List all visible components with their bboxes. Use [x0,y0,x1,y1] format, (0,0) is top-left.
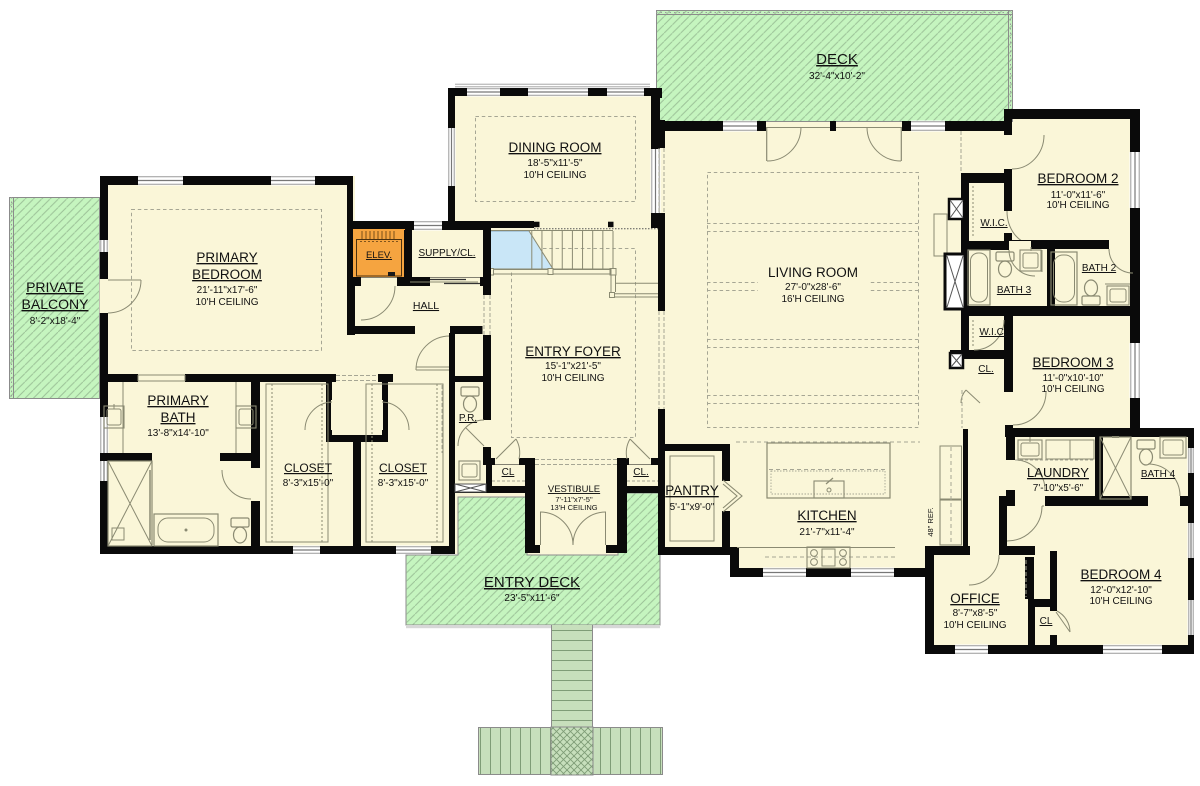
svg-text:10'H CEILING: 10'H CEILING [1089,596,1152,607]
svg-text:BATH: BATH [160,410,195,425]
svg-text:21'-7"x11'-4": 21'-7"x11'-4" [799,527,855,538]
svg-text:CL: CL [1040,616,1053,627]
svg-text:BATH 2: BATH 2 [1082,263,1117,274]
svg-text:27'-0"x28'-6": 27'-0"x28'-6" [785,282,841,293]
svg-text:10'H CEILING: 10'H CEILING [1046,200,1109,211]
svg-text:18'-5"x11'-5": 18'-5"x11'-5" [527,158,583,169]
svg-text:DINING ROOM: DINING ROOM [509,140,602,155]
svg-text:ELEV.: ELEV. [366,250,392,261]
svg-text:10'H CEILING: 10'H CEILING [1041,384,1104,395]
svg-text:CLOSET: CLOSET [284,461,333,475]
svg-text:10'H CEILING: 10'H CEILING [195,297,258,308]
svg-text:5'-1"x9'-0": 5'-1"x9'-0" [670,502,715,513]
svg-text:W.I.C.: W.I.C. [979,327,1006,338]
svg-text:13'-8"x14'-10": 13'-8"x14'-10" [147,428,209,439]
svg-text:LIVING ROOM: LIVING ROOM [768,265,858,280]
svg-text:32'-4"x10'-2": 32'-4"x10'-2" [809,71,865,82]
svg-text:11'-0"x10'-10": 11'-0"x10'-10" [1043,373,1104,384]
svg-text:8'-7"x8'-5": 8'-7"x8'-5" [953,608,998,619]
svg-text:W.I.C.: W.I.C. [980,218,1007,229]
svg-text:BEDROOM 4: BEDROOM 4 [1080,567,1162,582]
svg-text:8'-3"x15'-0": 8'-3"x15'-0" [378,478,429,489]
svg-text:LAUNDRY: LAUNDRY [1027,465,1089,480]
svg-text:CL.: CL. [633,467,649,478]
svg-text:7'-10"x5'-6": 7'-10"x5'-6" [1033,483,1084,494]
svg-text:VESTIBULE: VESTIBULE [548,484,600,495]
svg-text:13'H CEILING: 13'H CEILING [550,503,597,512]
svg-text:15'-1"x21'-5": 15'-1"x21'-5" [545,361,601,372]
svg-text:SUPPLY/CL.: SUPPLY/CL. [418,248,475,259]
svg-text:PRIMARY: PRIMARY [196,250,257,265]
svg-text:PRIVATE: PRIVATE [26,279,84,295]
svg-text:BEDROOM: BEDROOM [192,267,262,282]
svg-text:KITCHEN: KITCHEN [797,508,856,523]
svg-text:BEDROOM 3: BEDROOM 3 [1032,355,1113,370]
svg-text:10'H CEILING: 10'H CEILING [523,170,586,181]
svg-text:BALCONY: BALCONY [22,296,90,312]
svg-text:16'H CEILING: 16'H CEILING [781,294,844,305]
svg-text:P.R.: P.R. [459,413,477,424]
svg-text:HALL: HALL [413,300,439,312]
svg-text:48" REF.: 48" REF. [926,507,935,536]
svg-text:BATH 4: BATH 4 [1141,469,1176,480]
svg-text:8'-3"x15'-0": 8'-3"x15'-0" [283,478,334,489]
svg-text:10'H CEILING: 10'H CEILING [943,620,1006,631]
svg-text:BEDROOM 2: BEDROOM 2 [1037,171,1118,186]
svg-text:BATH 3: BATH 3 [997,285,1032,296]
svg-text:CL: CL [502,467,515,478]
svg-text:CL.: CL. [978,364,994,375]
svg-text:8'-2"x18'-4": 8'-2"x18'-4" [30,316,81,327]
svg-text:10'H CEILING: 10'H CEILING [541,373,604,384]
svg-text:21'-11"x17'-6": 21'-11"x17'-6" [197,285,258,296]
svg-text:ENTRY DECK: ENTRY DECK [484,574,580,591]
svg-text:12'-0"x12'-10": 12'-0"x12'-10" [1090,585,1152,596]
svg-text:PANTRY: PANTRY [665,483,719,498]
svg-text:DECK: DECK [816,51,858,68]
svg-text:ENTRY FOYER: ENTRY FOYER [525,344,621,359]
svg-text:OFFICE: OFFICE [950,591,1000,606]
svg-text:23'-5"x11'-6": 23'-5"x11'-6" [504,593,560,604]
svg-text:PRIMARY: PRIMARY [147,393,208,408]
svg-text:CLOSET: CLOSET [379,461,428,475]
